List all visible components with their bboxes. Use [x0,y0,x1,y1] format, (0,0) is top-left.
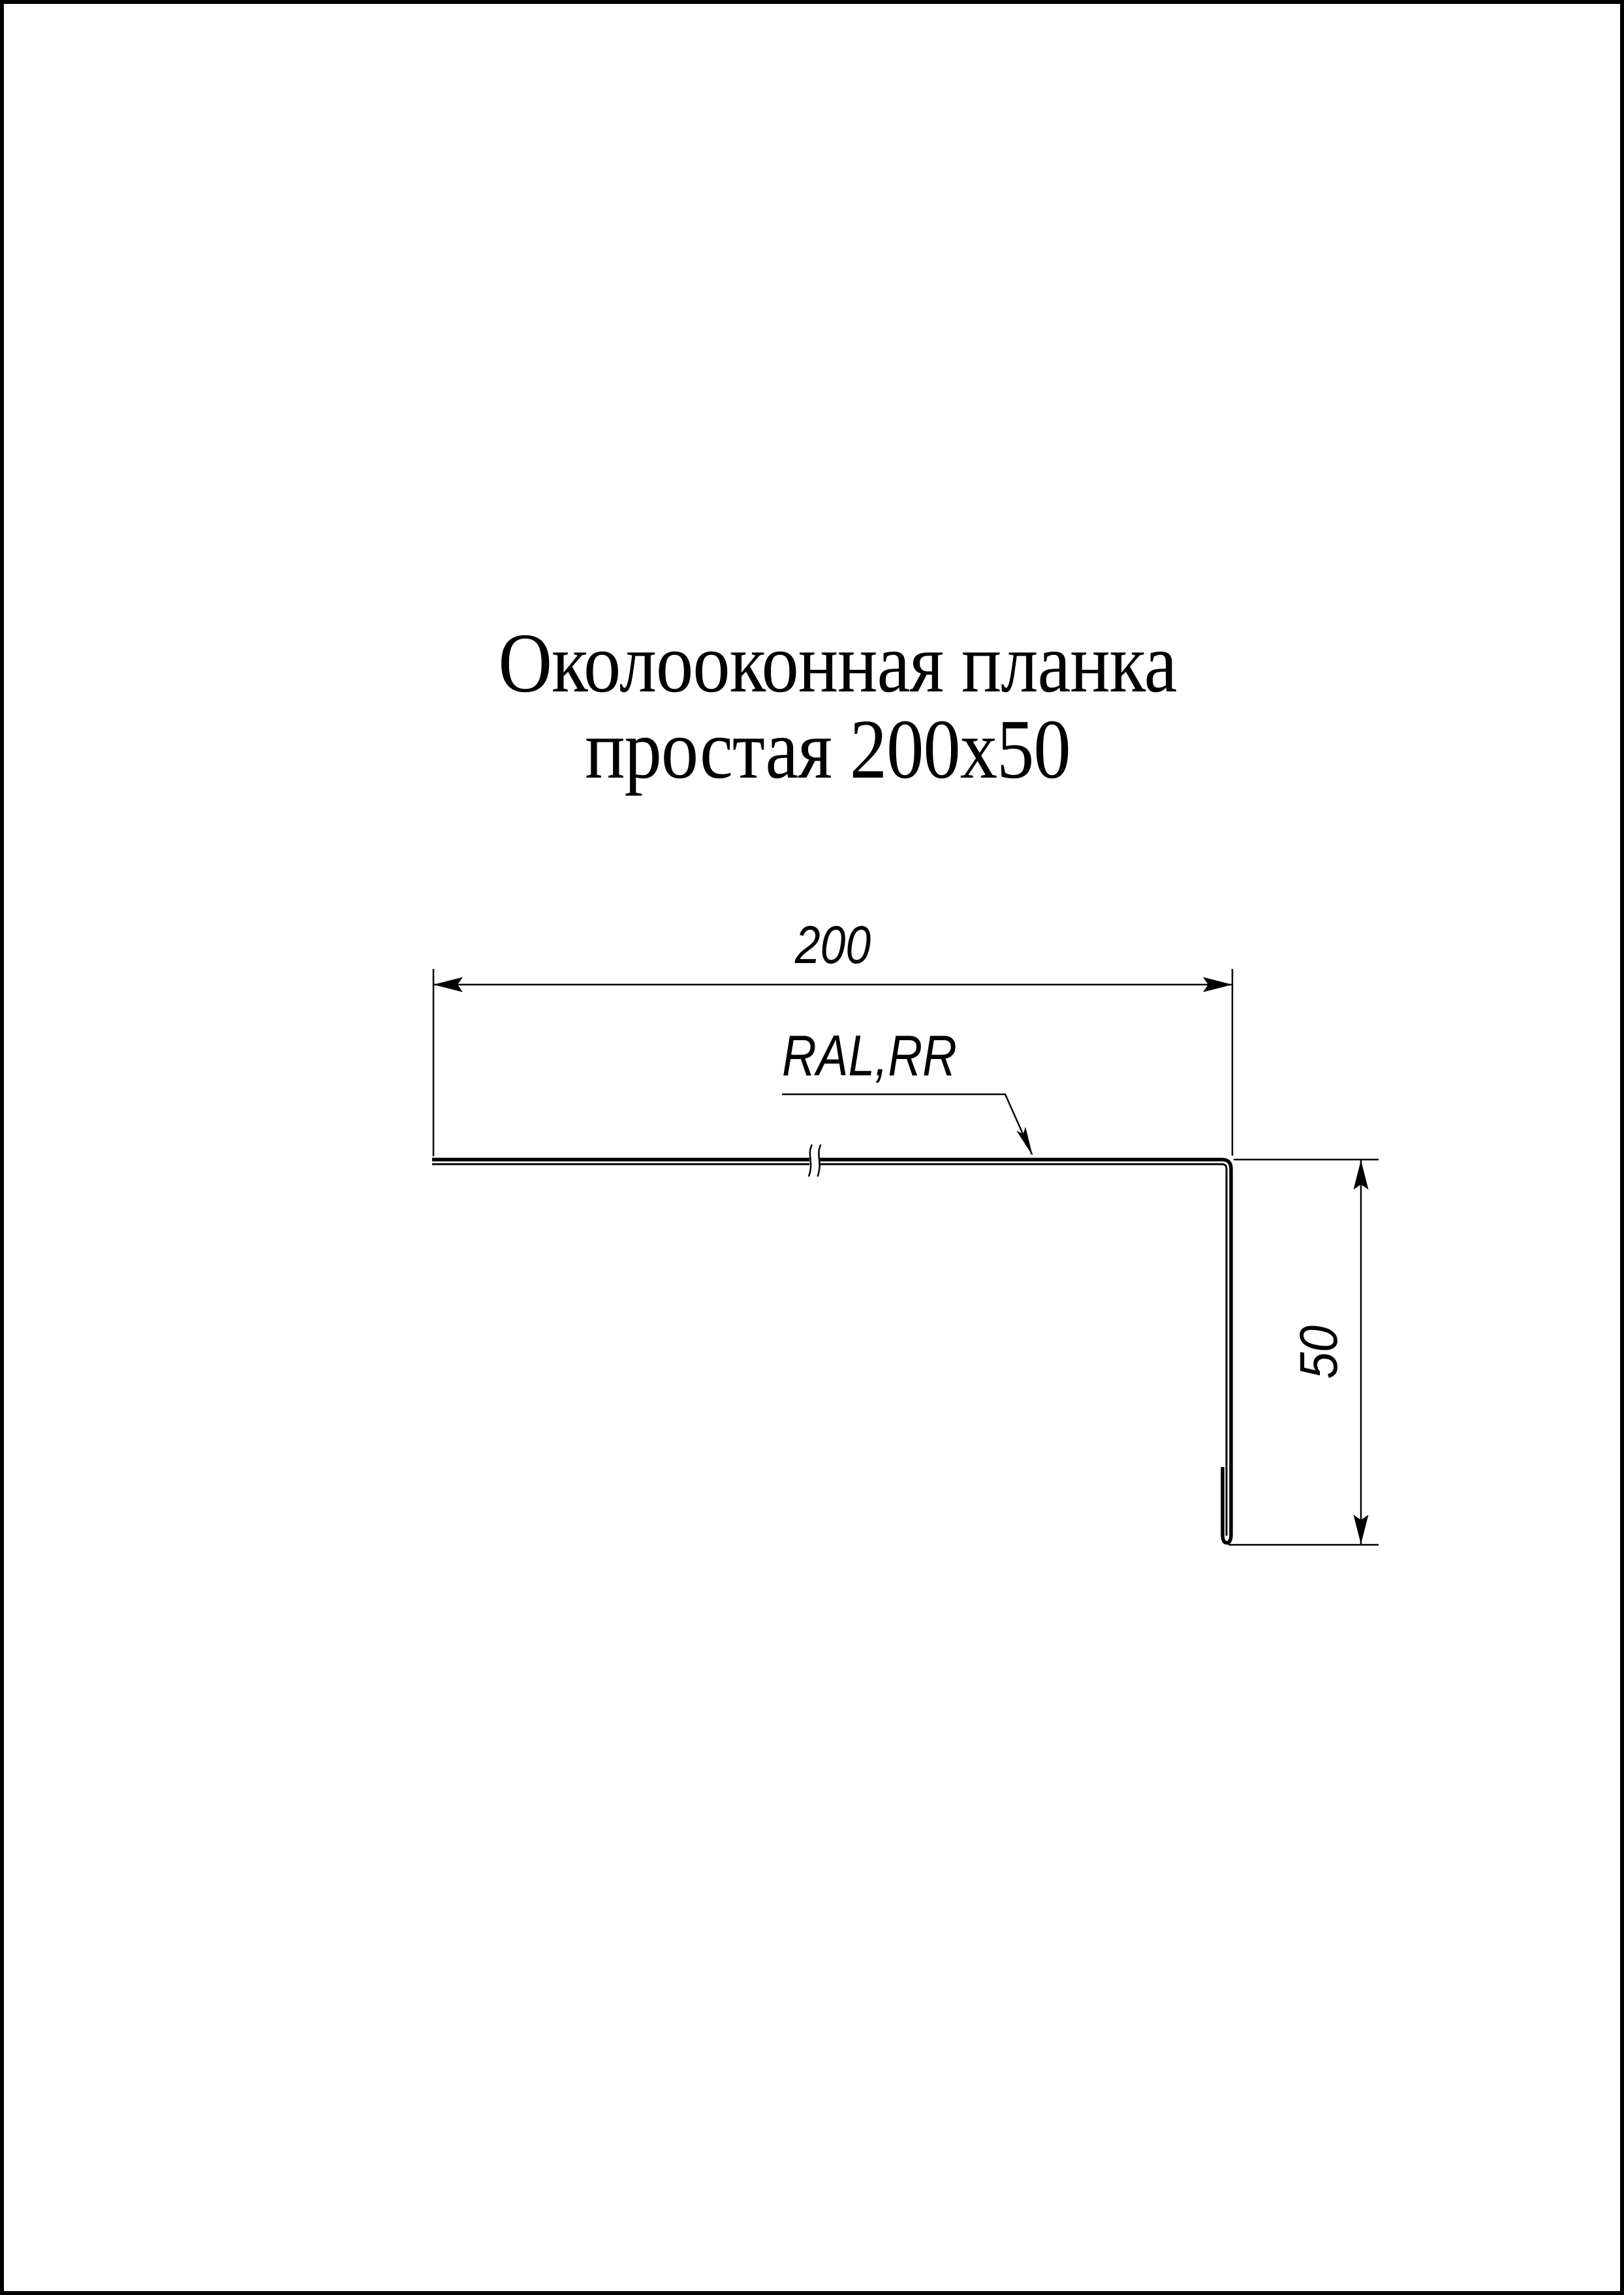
leader-line [782,1094,1032,1154]
leader-arrow-icon [1016,1127,1033,1156]
height-dimension-value: 50 [1292,1325,1346,1379]
profile-outer-line [432,1160,1231,1543]
width-dimension-value: 200 [795,919,871,972]
drawing-page: Околооконная планка простая 200x50 200 5… [0,0,1624,2295]
profile-inner-line [432,1164,1226,1536]
coating-label: RAL,RR [782,1027,957,1084]
drawing-title-line2: простая 200x50 [585,707,1070,792]
page-border [2,2,1622,2293]
technical-drawing [0,0,1624,2295]
drawing-title-line1: Околооконная планка [498,621,1176,706]
